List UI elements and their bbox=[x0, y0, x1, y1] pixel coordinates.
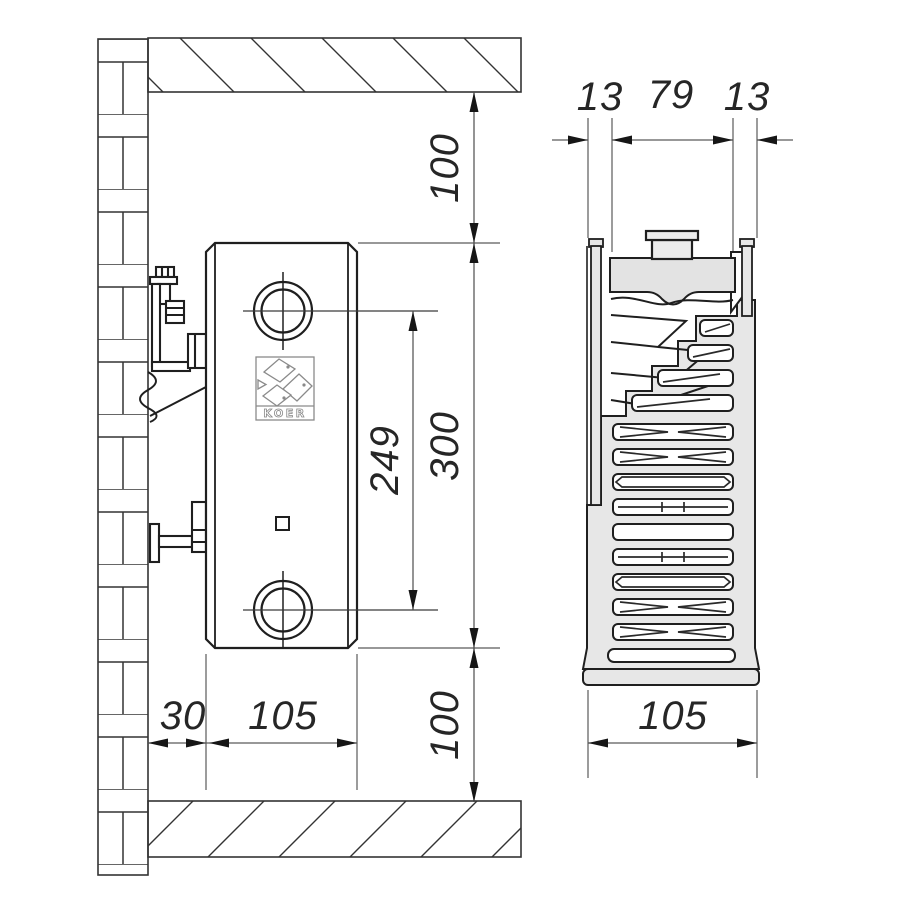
dim-radiator-height: 300 bbox=[423, 411, 467, 481]
section-base-plate bbox=[583, 669, 759, 685]
dim-ceiling-clearance: 100 bbox=[423, 133, 467, 203]
dim-depth-side: 105 bbox=[248, 694, 318, 738]
technical-drawing-canvas: KOER 100 300 249 100 3 bbox=[0, 0, 900, 900]
radiator-side-view: KOER bbox=[206, 243, 357, 649]
dim-connection-spacing: 249 bbox=[363, 425, 407, 496]
wall-section bbox=[98, 39, 148, 875]
vent-square bbox=[276, 517, 289, 530]
mounting-bracket-bottom bbox=[150, 502, 206, 562]
radiator-section-view bbox=[583, 231, 759, 685]
dim-front-panel: 13 bbox=[577, 75, 624, 119]
dim-rear-panel: 13 bbox=[724, 75, 771, 119]
dim-floor-clearance: 100 bbox=[423, 690, 467, 760]
radiator-drawing: KOER 100 300 249 100 3 bbox=[0, 0, 900, 900]
section-top-plug bbox=[646, 231, 698, 259]
dim-depth-section: 105 bbox=[638, 694, 708, 738]
dim-wall-gap: 30 bbox=[160, 694, 207, 738]
ceiling-section bbox=[148, 38, 521, 92]
mounting-bracket-top bbox=[140, 267, 206, 422]
floor-section bbox=[148, 801, 521, 857]
koer-logo: KOER bbox=[256, 357, 314, 420]
logo-text: KOER bbox=[263, 407, 306, 420]
dim-core-width: 79 bbox=[648, 73, 695, 117]
